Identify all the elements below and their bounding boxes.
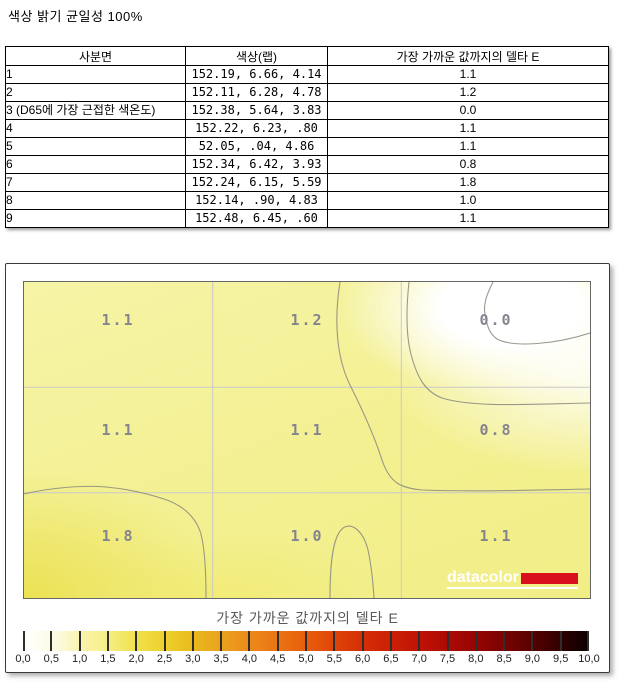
colorbar-tick-label: 3,5 bbox=[213, 653, 228, 665]
cell-lab-color: 152.19, 6.66, 4.14 bbox=[186, 66, 328, 84]
colorbar-tick bbox=[135, 631, 137, 651]
table-header-row: 사분면 색상(랩) 가장 가까운 값까지의 델타 E bbox=[6, 47, 609, 66]
colorbar-tick bbox=[503, 631, 505, 651]
cell-quadrant: 2 bbox=[6, 84, 186, 102]
table-row: 4152.22, 6.23, .801.1 bbox=[6, 120, 609, 138]
table-row: 9152.48, 6.45, .601.1 bbox=[6, 210, 609, 228]
colorbar-tick bbox=[305, 631, 307, 651]
colorbar-tick bbox=[475, 631, 477, 651]
cell-lab-color: 52.05, .04, 4.86 bbox=[186, 138, 328, 156]
colorbar-tick-label: 6,0 bbox=[355, 653, 370, 665]
colorbar-tick-label: 4,5 bbox=[270, 653, 285, 665]
heatmap-cell-value: 1.1 bbox=[101, 311, 134, 329]
cell-lab-color: 152.24, 6.15, 5.59 bbox=[186, 174, 328, 192]
colorbar-tick-label: 2,5 bbox=[157, 653, 172, 665]
colorbar-tick bbox=[107, 631, 109, 651]
colorbar-tick-label: 5,0 bbox=[298, 653, 313, 665]
cell-quadrant: 4 bbox=[6, 120, 186, 138]
colorbar-tick-label: 3,0 bbox=[185, 653, 200, 665]
colorbar-tick-label: 7,0 bbox=[412, 653, 427, 665]
colorbar-tick-label: 9,0 bbox=[525, 653, 540, 665]
colorbar-tick-label: 10,0 bbox=[578, 653, 599, 665]
colorbar-tick-label: 0,5 bbox=[44, 653, 59, 665]
cell-quadrant: 7 bbox=[6, 174, 186, 192]
colorbar-tick-label: 9,5 bbox=[553, 653, 568, 665]
colorbar-tick bbox=[50, 631, 52, 651]
cell-delta-e: 0.0 bbox=[328, 102, 609, 120]
colorbar-tick bbox=[531, 631, 533, 651]
cell-lab-color: 152.34, 6.42, 3.93 bbox=[186, 156, 328, 174]
table-row: 6152.34, 6.42, 3.930.8 bbox=[6, 156, 609, 174]
header-lab-color: 색상(랩) bbox=[186, 47, 328, 66]
colorbar-tick-label: 1,0 bbox=[72, 653, 87, 665]
colorbar-tick bbox=[192, 631, 194, 651]
colorbar-tick-label: 0,0 bbox=[15, 653, 30, 665]
cell-quadrant: 5 bbox=[6, 138, 186, 156]
colorbar-tick bbox=[277, 631, 279, 651]
header-delta-e: 가장 가까운 값까지의 델타 E bbox=[328, 47, 609, 66]
heatmap-cell-value: 1.1 bbox=[290, 421, 323, 439]
heatmap-contours bbox=[24, 282, 590, 598]
cell-quadrant: 8 bbox=[6, 192, 186, 210]
cell-quadrant: 9 bbox=[6, 210, 186, 228]
page-title: 색상 밝기 균일성 100% bbox=[8, 6, 143, 25]
table-row: 2152.11, 6.28, 4.781.2 bbox=[6, 84, 609, 102]
table-row: 5 52.05, .04, 4.861.1 bbox=[6, 138, 609, 156]
colorbar-tick bbox=[164, 631, 166, 651]
table-row: 1152.19, 6.66, 4.141.1 bbox=[6, 66, 609, 84]
colorbar-tick bbox=[362, 631, 364, 651]
cell-lab-color: 152.22, 6.23, .80 bbox=[186, 120, 328, 138]
datacolor-logo: datacolor bbox=[447, 572, 578, 589]
colorbar-tick bbox=[79, 631, 81, 651]
heatmap-cell-value: 0.0 bbox=[479, 311, 512, 329]
heatmap: datacolor 1.11.20.01.11.10.81.81.01.1 bbox=[23, 281, 591, 599]
colorbar-tick-label: 8,5 bbox=[496, 653, 511, 665]
cell-quadrant: 1 bbox=[6, 66, 186, 84]
uniformity-table-body: 1152.19, 6.66, 4.141.12152.11, 6.28, 4.7… bbox=[6, 66, 609, 228]
table-row: 3 (D65에 가장 근접한 색온도)152.38, 5.64, 3.830.0 bbox=[6, 102, 609, 120]
colorbar-tick-label: 4,0 bbox=[242, 653, 257, 665]
colorbar-tick bbox=[333, 631, 335, 651]
colorbar-tick bbox=[390, 631, 392, 651]
heatmap-cell-value: 1.8 bbox=[101, 527, 134, 545]
colorbar-tick-label: 7,5 bbox=[440, 653, 455, 665]
heatmap-cell-value: 1.2 bbox=[290, 311, 323, 329]
cell-lab-color: 152.38, 5.64, 3.83 bbox=[186, 102, 328, 120]
heatmap-cell-value: 1.1 bbox=[101, 421, 134, 439]
colorbar-tick bbox=[587, 631, 589, 651]
colorbar-tick bbox=[418, 631, 420, 651]
colorbar-tick-label: 5,5 bbox=[327, 653, 342, 665]
table-row: 7152.24, 6.15, 5.591.8 bbox=[6, 174, 609, 192]
colorbar-tick-label: 6,5 bbox=[383, 653, 398, 665]
colorbar-labels: 0,00,51,01,52,02,53,03,54,04,55,05,56,06… bbox=[23, 653, 589, 667]
cell-delta-e: 1.2 bbox=[328, 84, 609, 102]
table-row: 8152.14, .90, 4.831.0 bbox=[6, 192, 609, 210]
cell-quadrant: 3 (D65에 가장 근접한 색온도) bbox=[6, 102, 186, 120]
heatmap-cell-value: 1.1 bbox=[479, 527, 512, 545]
colorbar-tick-label: 2,0 bbox=[129, 653, 144, 665]
cell-delta-e: 0.8 bbox=[328, 156, 609, 174]
cell-lab-color: 152.14, .90, 4.83 bbox=[186, 192, 328, 210]
uniformity-table: 사분면 색상(랩) 가장 가까운 값까지의 델타 E 1152.19, 6.66… bbox=[5, 46, 609, 228]
colorbar-tick bbox=[23, 631, 25, 651]
cell-delta-e: 1.0 bbox=[328, 192, 609, 210]
cell-delta-e: 1.8 bbox=[328, 174, 609, 192]
uniformity-chart-panel: datacolor 1.11.20.01.11.10.81.81.01.1 가장… bbox=[5, 263, 610, 673]
colorbar-gradient bbox=[23, 631, 589, 651]
cell-lab-color: 152.48, 6.45, .60 bbox=[186, 210, 328, 228]
colorbar-tick bbox=[248, 631, 250, 651]
colorbar-tick-label: 1,5 bbox=[100, 653, 115, 665]
heatmap-cell-value: 0.8 bbox=[479, 421, 512, 439]
colorbar-title: 가장 가까운 값까지의 델타 E bbox=[6, 608, 609, 628]
cell-quadrant: 6 bbox=[6, 156, 186, 174]
cell-delta-e: 1.1 bbox=[328, 210, 609, 228]
header-quadrant: 사분면 bbox=[6, 47, 186, 66]
colorbar-tick-label: 8,0 bbox=[468, 653, 483, 665]
colorbar-tick bbox=[447, 631, 449, 651]
cell-delta-e: 1.1 bbox=[328, 138, 609, 156]
colorbar-tick bbox=[560, 631, 562, 651]
heatmap-cell-value: 1.0 bbox=[290, 527, 323, 545]
cell-delta-e: 1.1 bbox=[328, 66, 609, 84]
cell-delta-e: 1.1 bbox=[328, 120, 609, 138]
datacolor-logo-mark bbox=[521, 573, 578, 584]
datacolor-logo-text: datacolor bbox=[447, 572, 519, 584]
colorbar-tick bbox=[220, 631, 222, 651]
cell-lab-color: 152.11, 6.28, 4.78 bbox=[186, 84, 328, 102]
